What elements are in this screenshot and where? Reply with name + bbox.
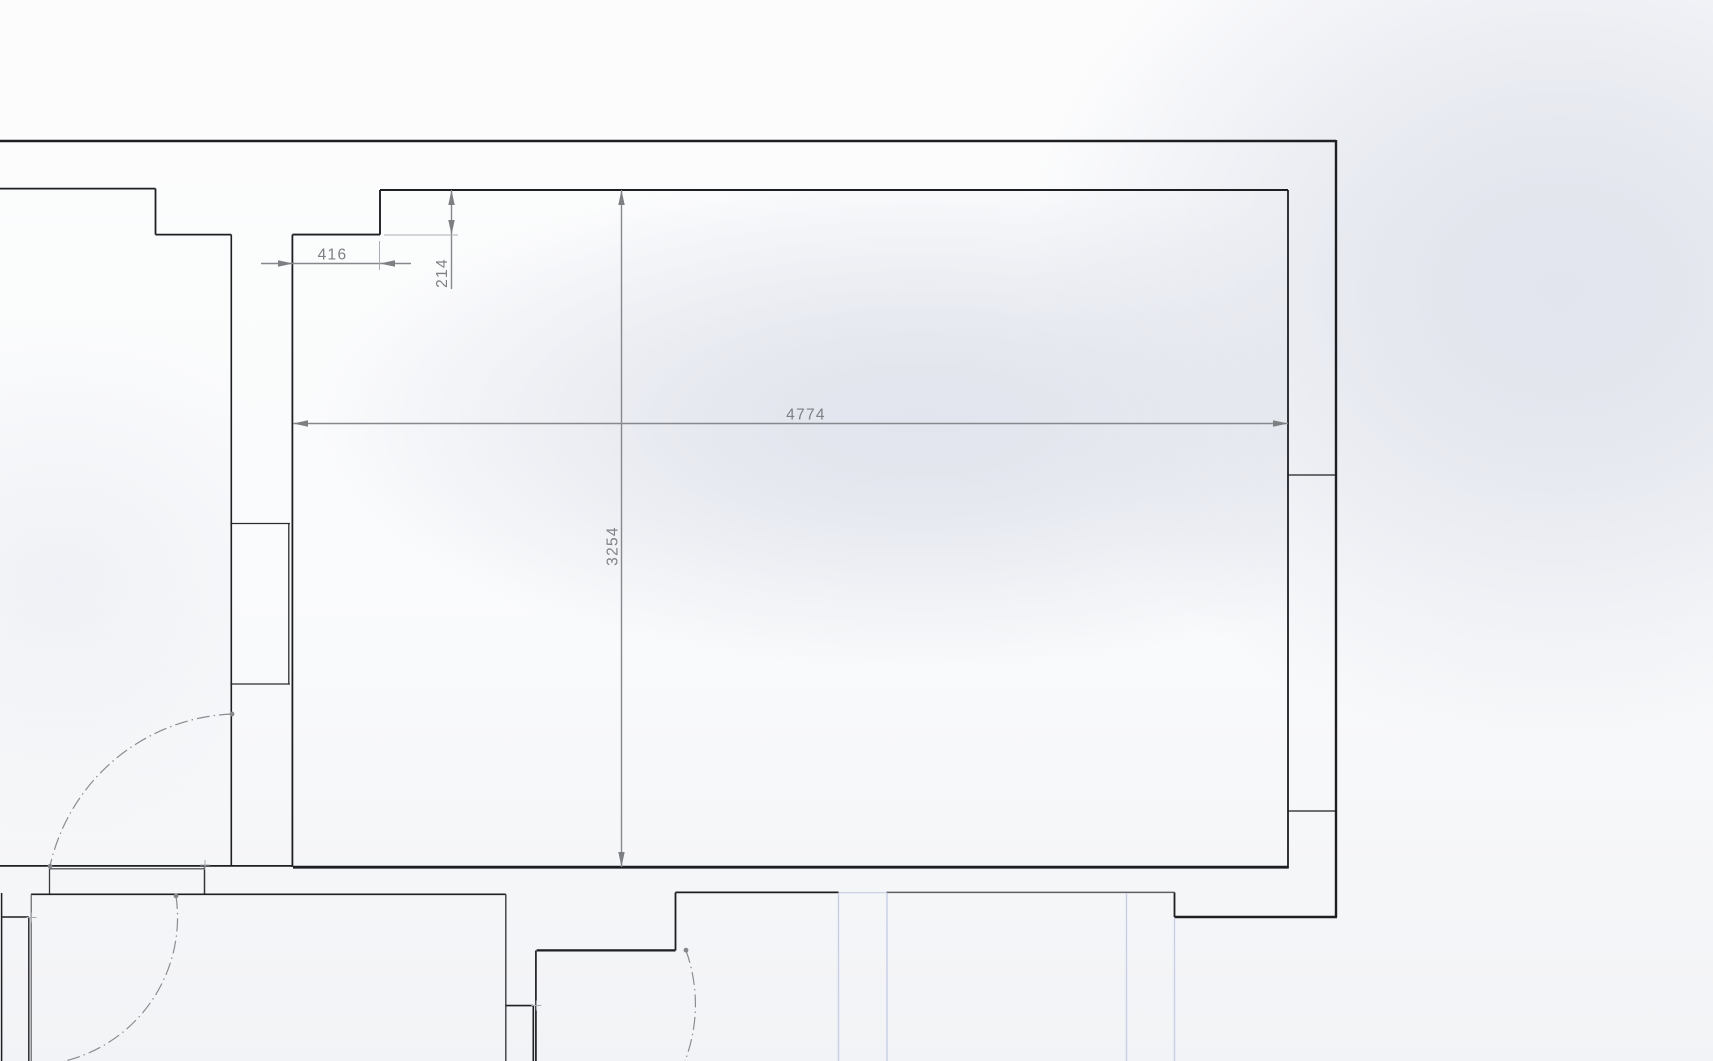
svg-text:214: 214 bbox=[434, 258, 451, 288]
svg-text:416: 416 bbox=[318, 247, 348, 264]
svg-text:4774: 4774 bbox=[786, 407, 826, 424]
svg-text:3254: 3254 bbox=[605, 526, 622, 566]
